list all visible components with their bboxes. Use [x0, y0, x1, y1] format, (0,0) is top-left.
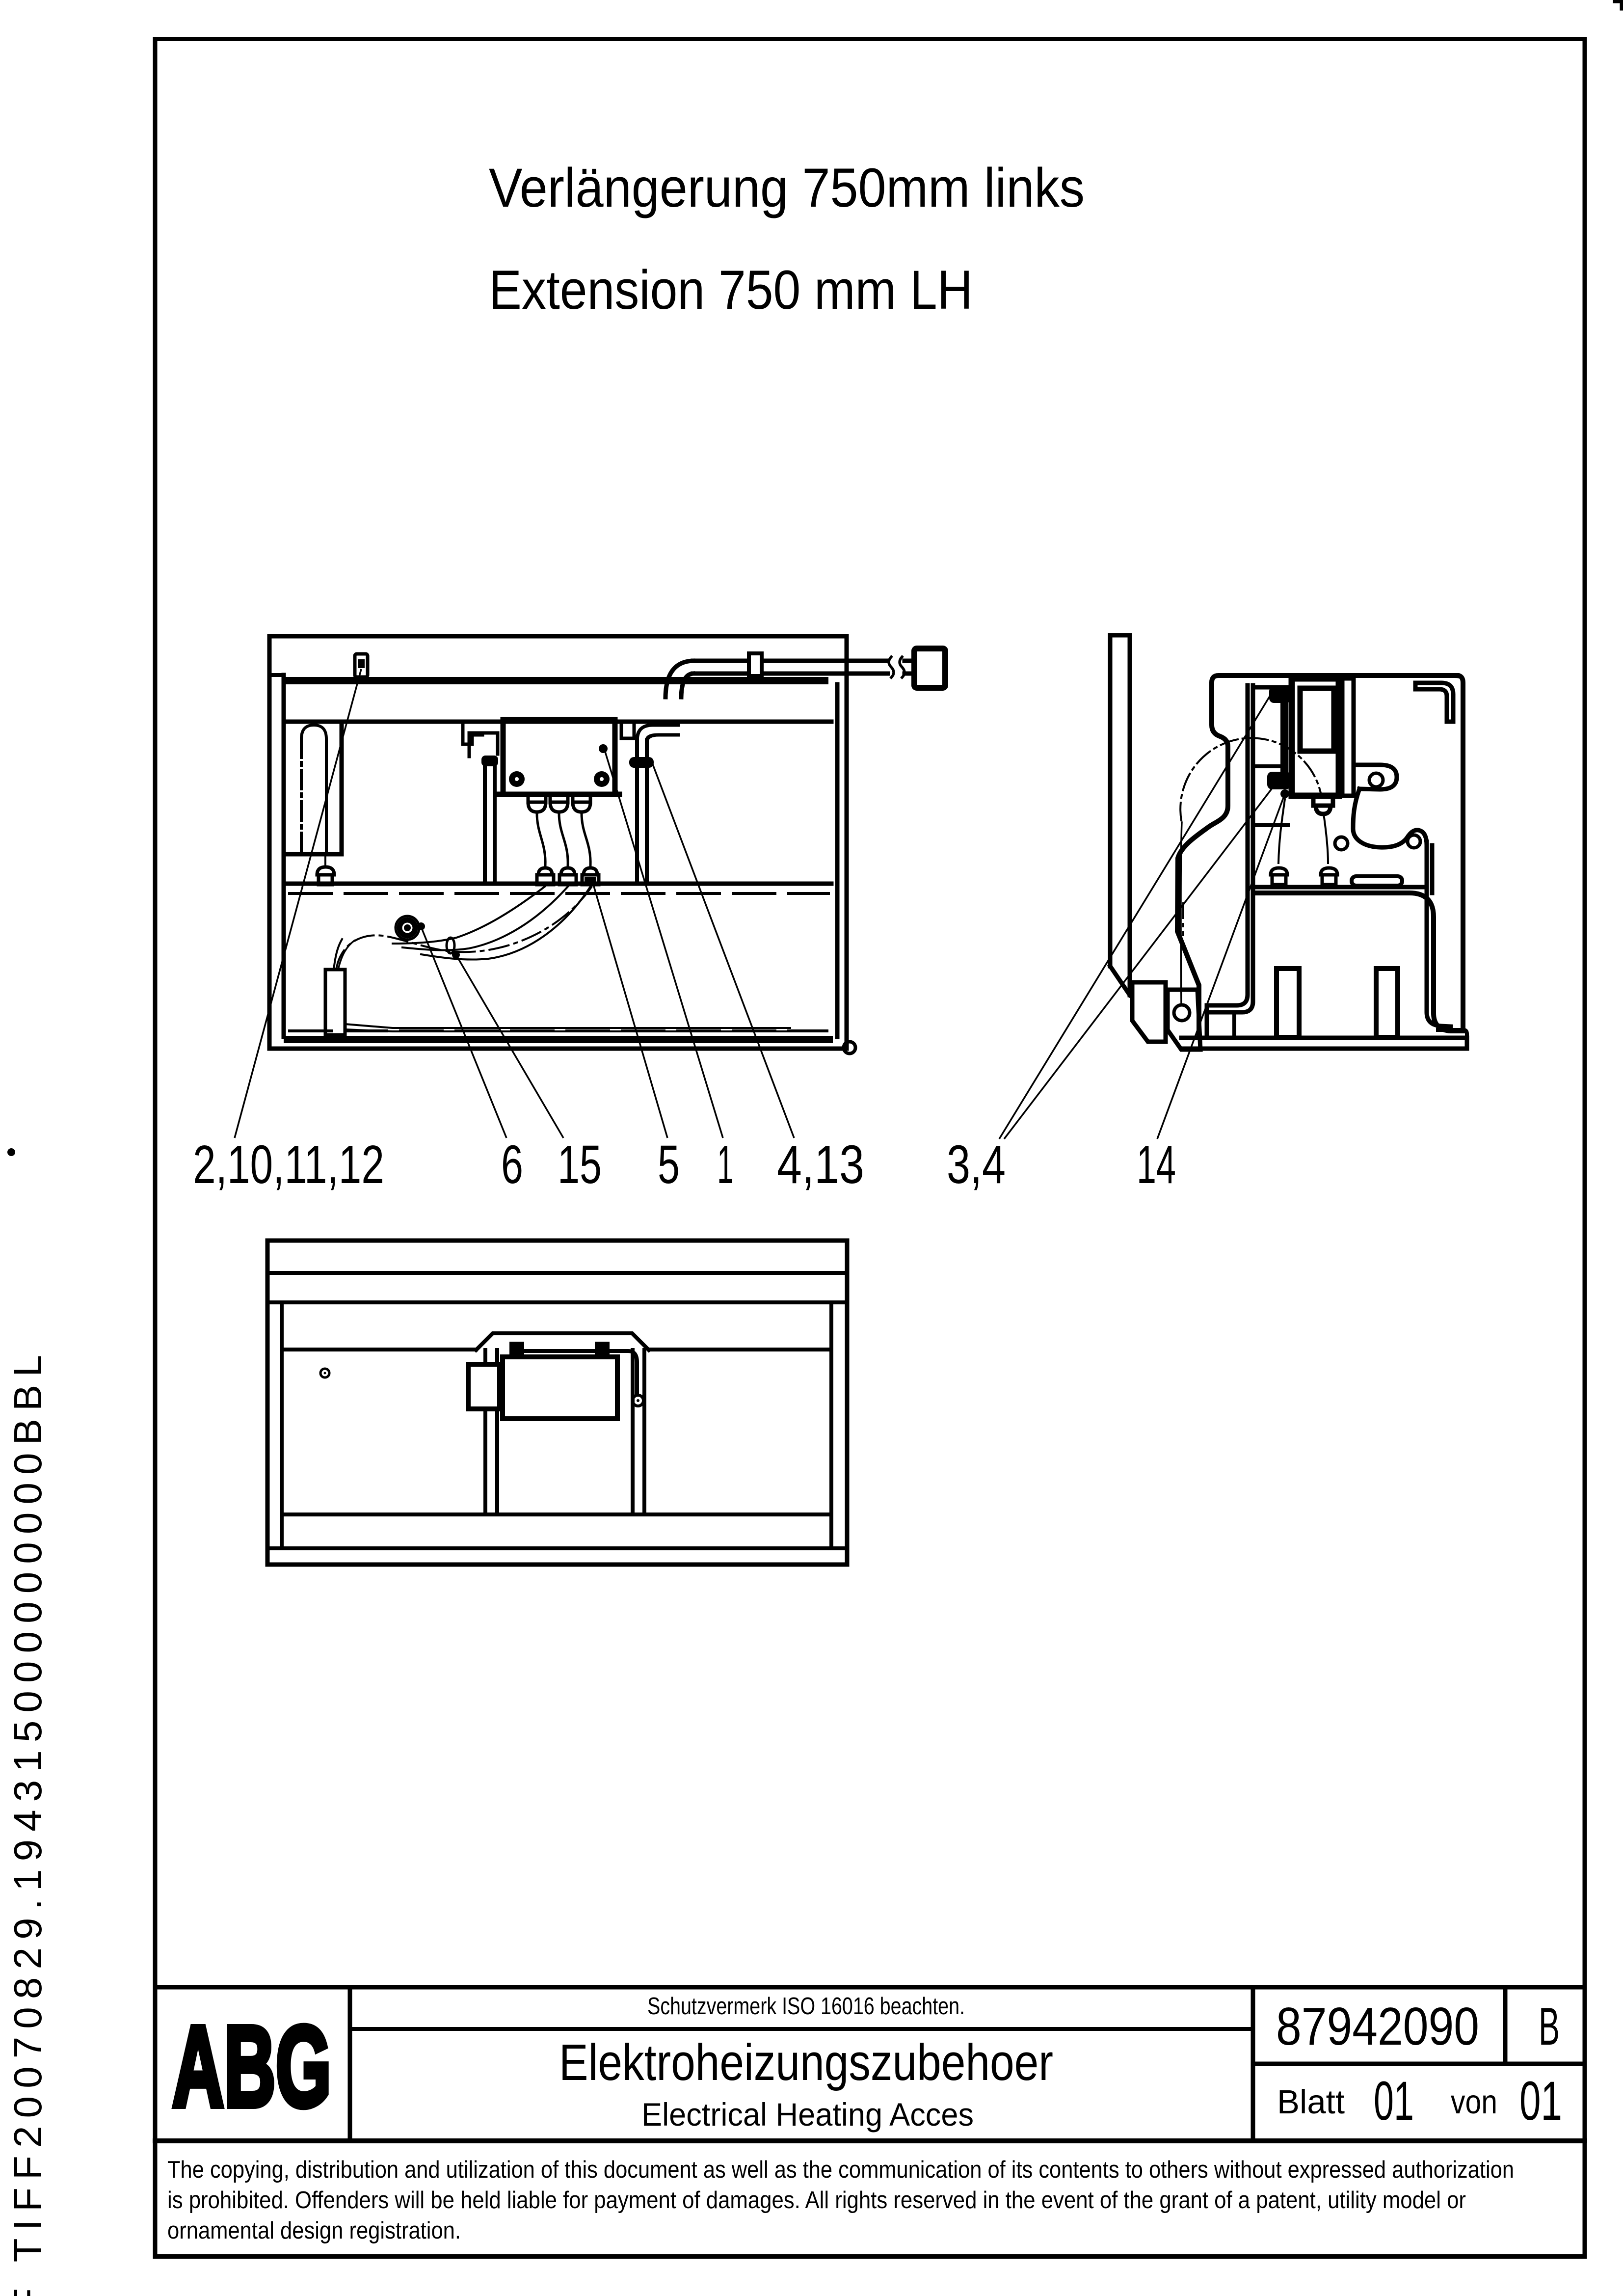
svg-text:4,13: 4,13 [777, 1134, 864, 1195]
svg-text:B: B [1539, 1997, 1560, 2056]
svg-text:Electrical Heating Acces: Electrical Heating Acces [641, 2097, 974, 2133]
svg-text:Verlängerung 750mm links: Verlängerung 750mm links [489, 157, 1085, 218]
svg-text:5: 5 [658, 1134, 680, 1195]
svg-text:The copying, distribution and: The copying, distribution and utilizatio… [167, 2156, 1514, 2183]
svg-text:87942090: 87942090 [1276, 1997, 1479, 2056]
svg-text:Schutzvermerk ISO 16016 beacht: Schutzvermerk ISO 16016 beachten. [647, 1993, 965, 2020]
svg-text:14: 14 [1137, 1134, 1176, 1195]
svg-text:01: 01 [1374, 2070, 1414, 2132]
svg-text:Elektroheizungszubehoer: Elektroheizungszubehoer [559, 2034, 1053, 2091]
svg-text:3,4: 3,4 [947, 1134, 1006, 1195]
svg-text:ABG: ABG [172, 2002, 331, 2131]
svg-text:von: von [1451, 2083, 1497, 2121]
svg-text:is prohibited. Offenders will: is prohibited. Offenders will be held li… [167, 2187, 1466, 2214]
svg-text:6: 6 [501, 1134, 523, 1195]
svg-text:1: 1 [717, 1134, 734, 1195]
svg-text:Blatt: Blatt [1277, 2083, 1345, 2121]
svg-text:15: 15 [558, 1134, 602, 1195]
svg-text:2,10,11,12: 2,10,11,12 [193, 1134, 384, 1195]
svg-text:01: 01 [1519, 2070, 1562, 2132]
svg-text:Extension 750 mm LH: Extension 750 mm LH [489, 259, 973, 321]
svg-text:ornamental design registration: ornamental design registration. [167, 2217, 461, 2244]
